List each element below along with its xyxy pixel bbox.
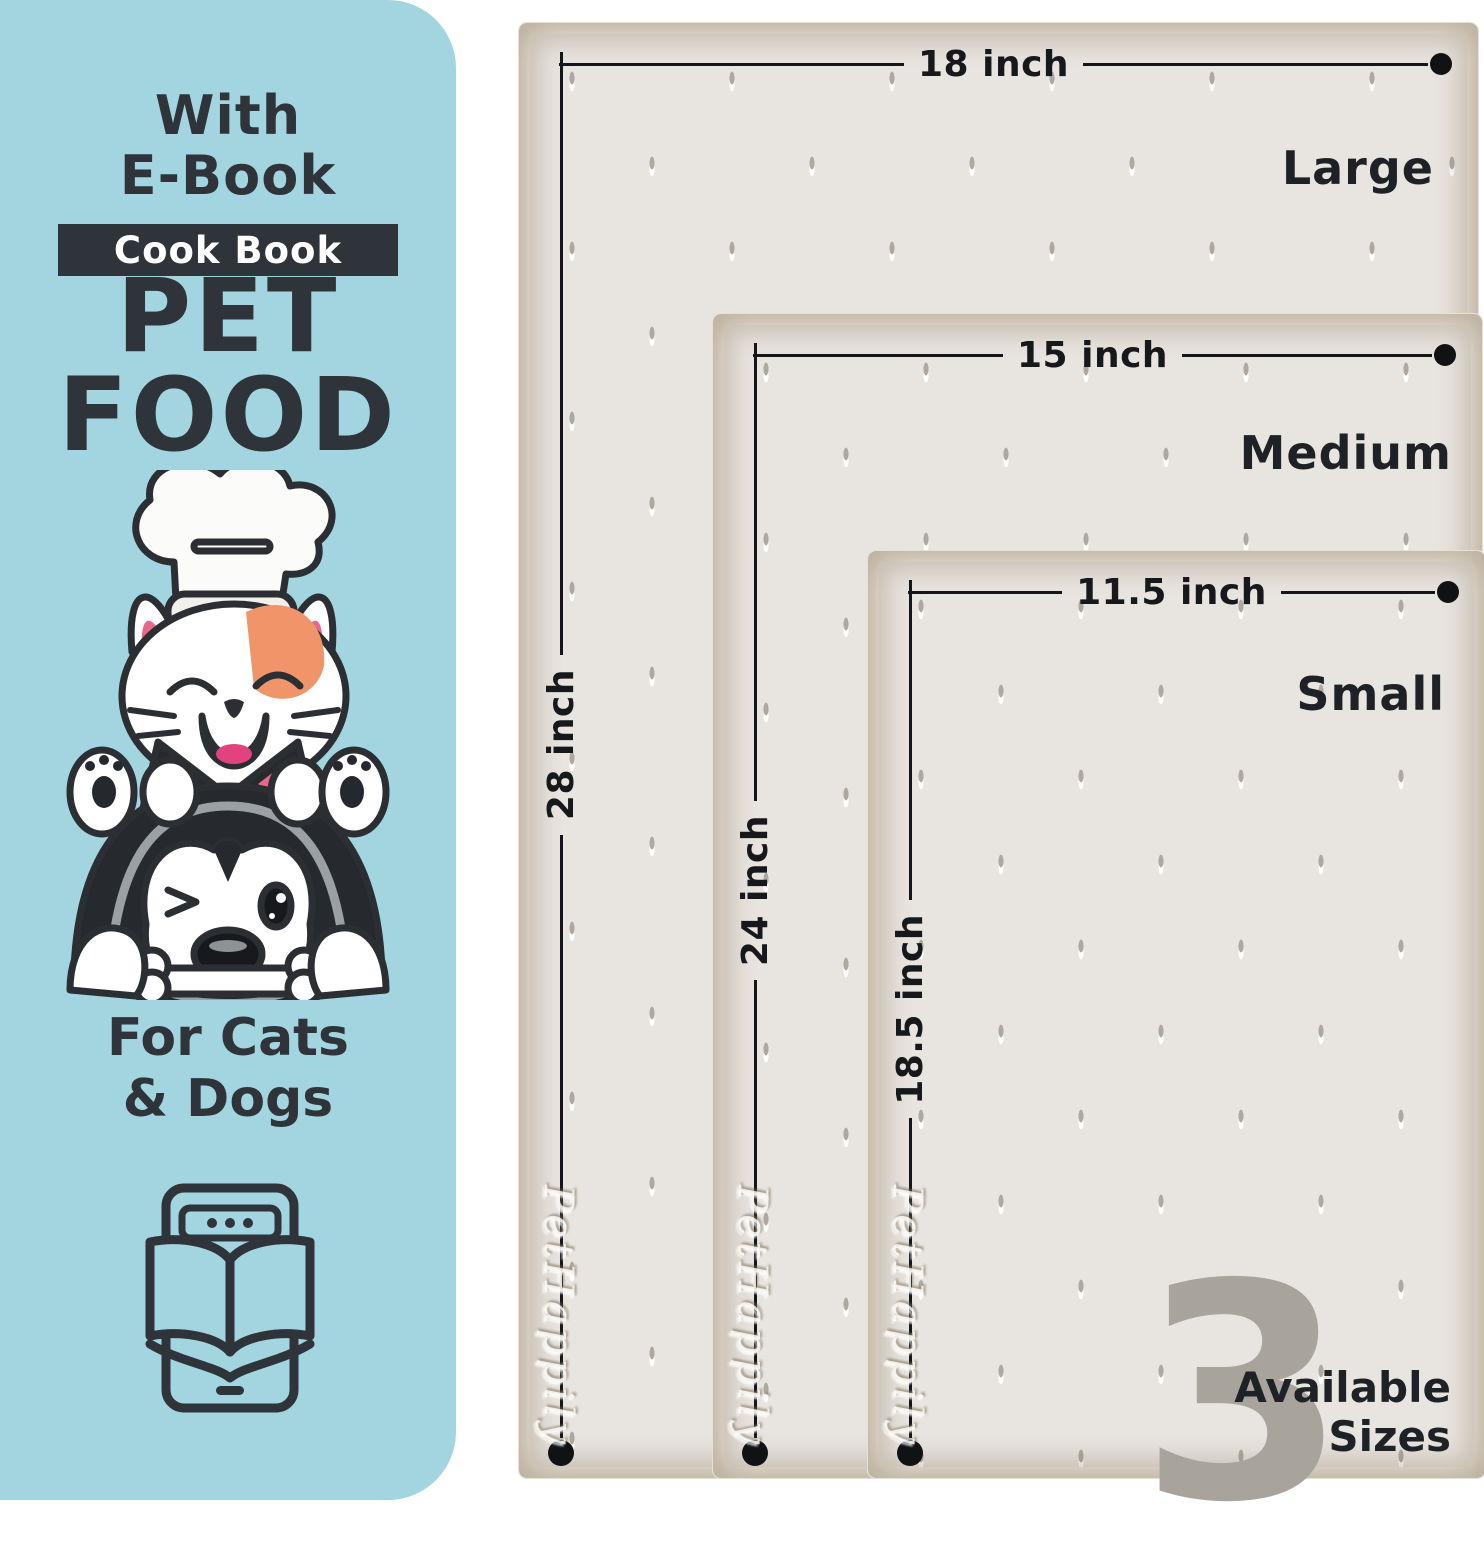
- dimension-line: [1182, 354, 1432, 357]
- width-label: 15 inch: [1017, 335, 1168, 376]
- dimension-line: [559, 63, 904, 66]
- dimension-line: [560, 52, 563, 655]
- open-book-icon: [150, 1240, 310, 1378]
- dimension-line: [909, 580, 912, 900]
- pet-food-title-line1: PET: [0, 268, 456, 367]
- audience-heading: For Cats & Dogs: [0, 1008, 456, 1131]
- dimension-endpoint-dot: [1434, 344, 1456, 366]
- available-sizes-label: Available Sizes: [1234, 1363, 1451, 1462]
- brand-panel: With E-Book Cook Book PET FOOD: [0, 0, 456, 1500]
- dimension-endpoint-dot: [1430, 53, 1452, 75]
- available-sizes-line1: Available: [1234, 1363, 1451, 1413]
- size-name-medium: Medium: [1240, 426, 1452, 480]
- cat-tongue: [216, 744, 252, 764]
- width-label: 11.5 inch: [1076, 572, 1267, 613]
- cat-paw-left: [143, 760, 197, 824]
- dimension-line: [754, 343, 757, 801]
- dimension-line: [1281, 591, 1435, 594]
- audience-line2: & Dogs: [0, 1069, 456, 1130]
- with-ebook-line1: With: [0, 86, 456, 146]
- mat-small: 11.5 inch 18.5 inch Small PetHappily 3 A…: [867, 550, 1484, 1479]
- size-name-small: Small: [1296, 667, 1445, 721]
- height-label: 28 inch: [541, 669, 582, 820]
- with-ebook-heading: With E-Book: [0, 86, 456, 207]
- mat-large-width-dimension: 18 inch: [559, 50, 1452, 78]
- pet-food-title: PET FOOD: [0, 268, 456, 466]
- audience-line1: For Cats: [0, 1008, 456, 1069]
- with-ebook-line2: E-Book: [0, 146, 456, 206]
- embossed-brand-watermark: PetHappily: [884, 1185, 930, 1448]
- dimension-line: [1083, 63, 1428, 66]
- tablet-menu-dots: [207, 1218, 253, 1228]
- dimension-endpoint-dot: [1437, 581, 1459, 603]
- available-sizes-line2: Sizes: [1234, 1412, 1451, 1462]
- embossed-brand-watermark: PetHappily: [729, 1185, 775, 1448]
- pet-food-title-line2: FOOD: [0, 367, 456, 466]
- tablet-home-button: [216, 1386, 244, 1395]
- size-name-large: Large: [1282, 141, 1434, 195]
- dimension-line: [753, 354, 1003, 357]
- ebook-tablet-icon: [138, 1182, 322, 1414]
- cat-and-dog-chef-illustration: [18, 470, 438, 1000]
- dog-open-eye: [261, 885, 291, 927]
- dimension-line: [908, 591, 1062, 594]
- height-label: 18.5 inch: [890, 914, 931, 1105]
- mat-medium-width-dimension: 15 inch: [753, 341, 1456, 369]
- mat-small-width-dimension: 11.5 inch: [908, 578, 1459, 606]
- embossed-brand-watermark: PetHappily: [535, 1185, 581, 1448]
- width-label: 18 inch: [918, 44, 1069, 85]
- height-label: 24 inch: [735, 815, 776, 966]
- cat-paw-right: [271, 760, 325, 824]
